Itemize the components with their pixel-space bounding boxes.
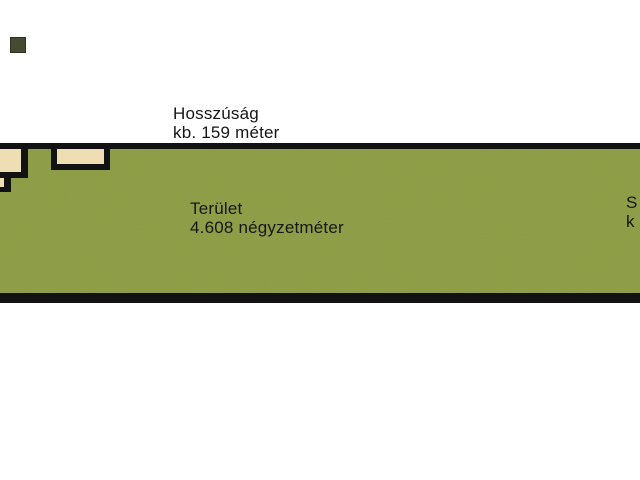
area-label: Terület 4.608 négyzetméter bbox=[190, 199, 344, 237]
building-2-fill bbox=[57, 149, 104, 164]
legend-swatch bbox=[10, 37, 26, 53]
area-label-line2: 4.608 négyzetméter bbox=[190, 218, 344, 237]
area-label-line1: Terület bbox=[190, 199, 344, 218]
side-label-line1: S bbox=[626, 193, 638, 212]
building-1-annex-fill bbox=[0, 178, 4, 187]
building-1-fill bbox=[0, 149, 21, 172]
site-plan-canvas: Hosszúság kb. 159 méter Terület 4.608 né… bbox=[0, 0, 640, 480]
length-label-line1: Hosszúság bbox=[173, 104, 280, 123]
length-label: Hosszúság kb. 159 méter bbox=[173, 104, 280, 142]
side-label-clipped: S k bbox=[626, 193, 638, 231]
side-label-line2: k bbox=[626, 212, 638, 231]
length-label-line2: kb. 159 méter bbox=[173, 123, 280, 142]
